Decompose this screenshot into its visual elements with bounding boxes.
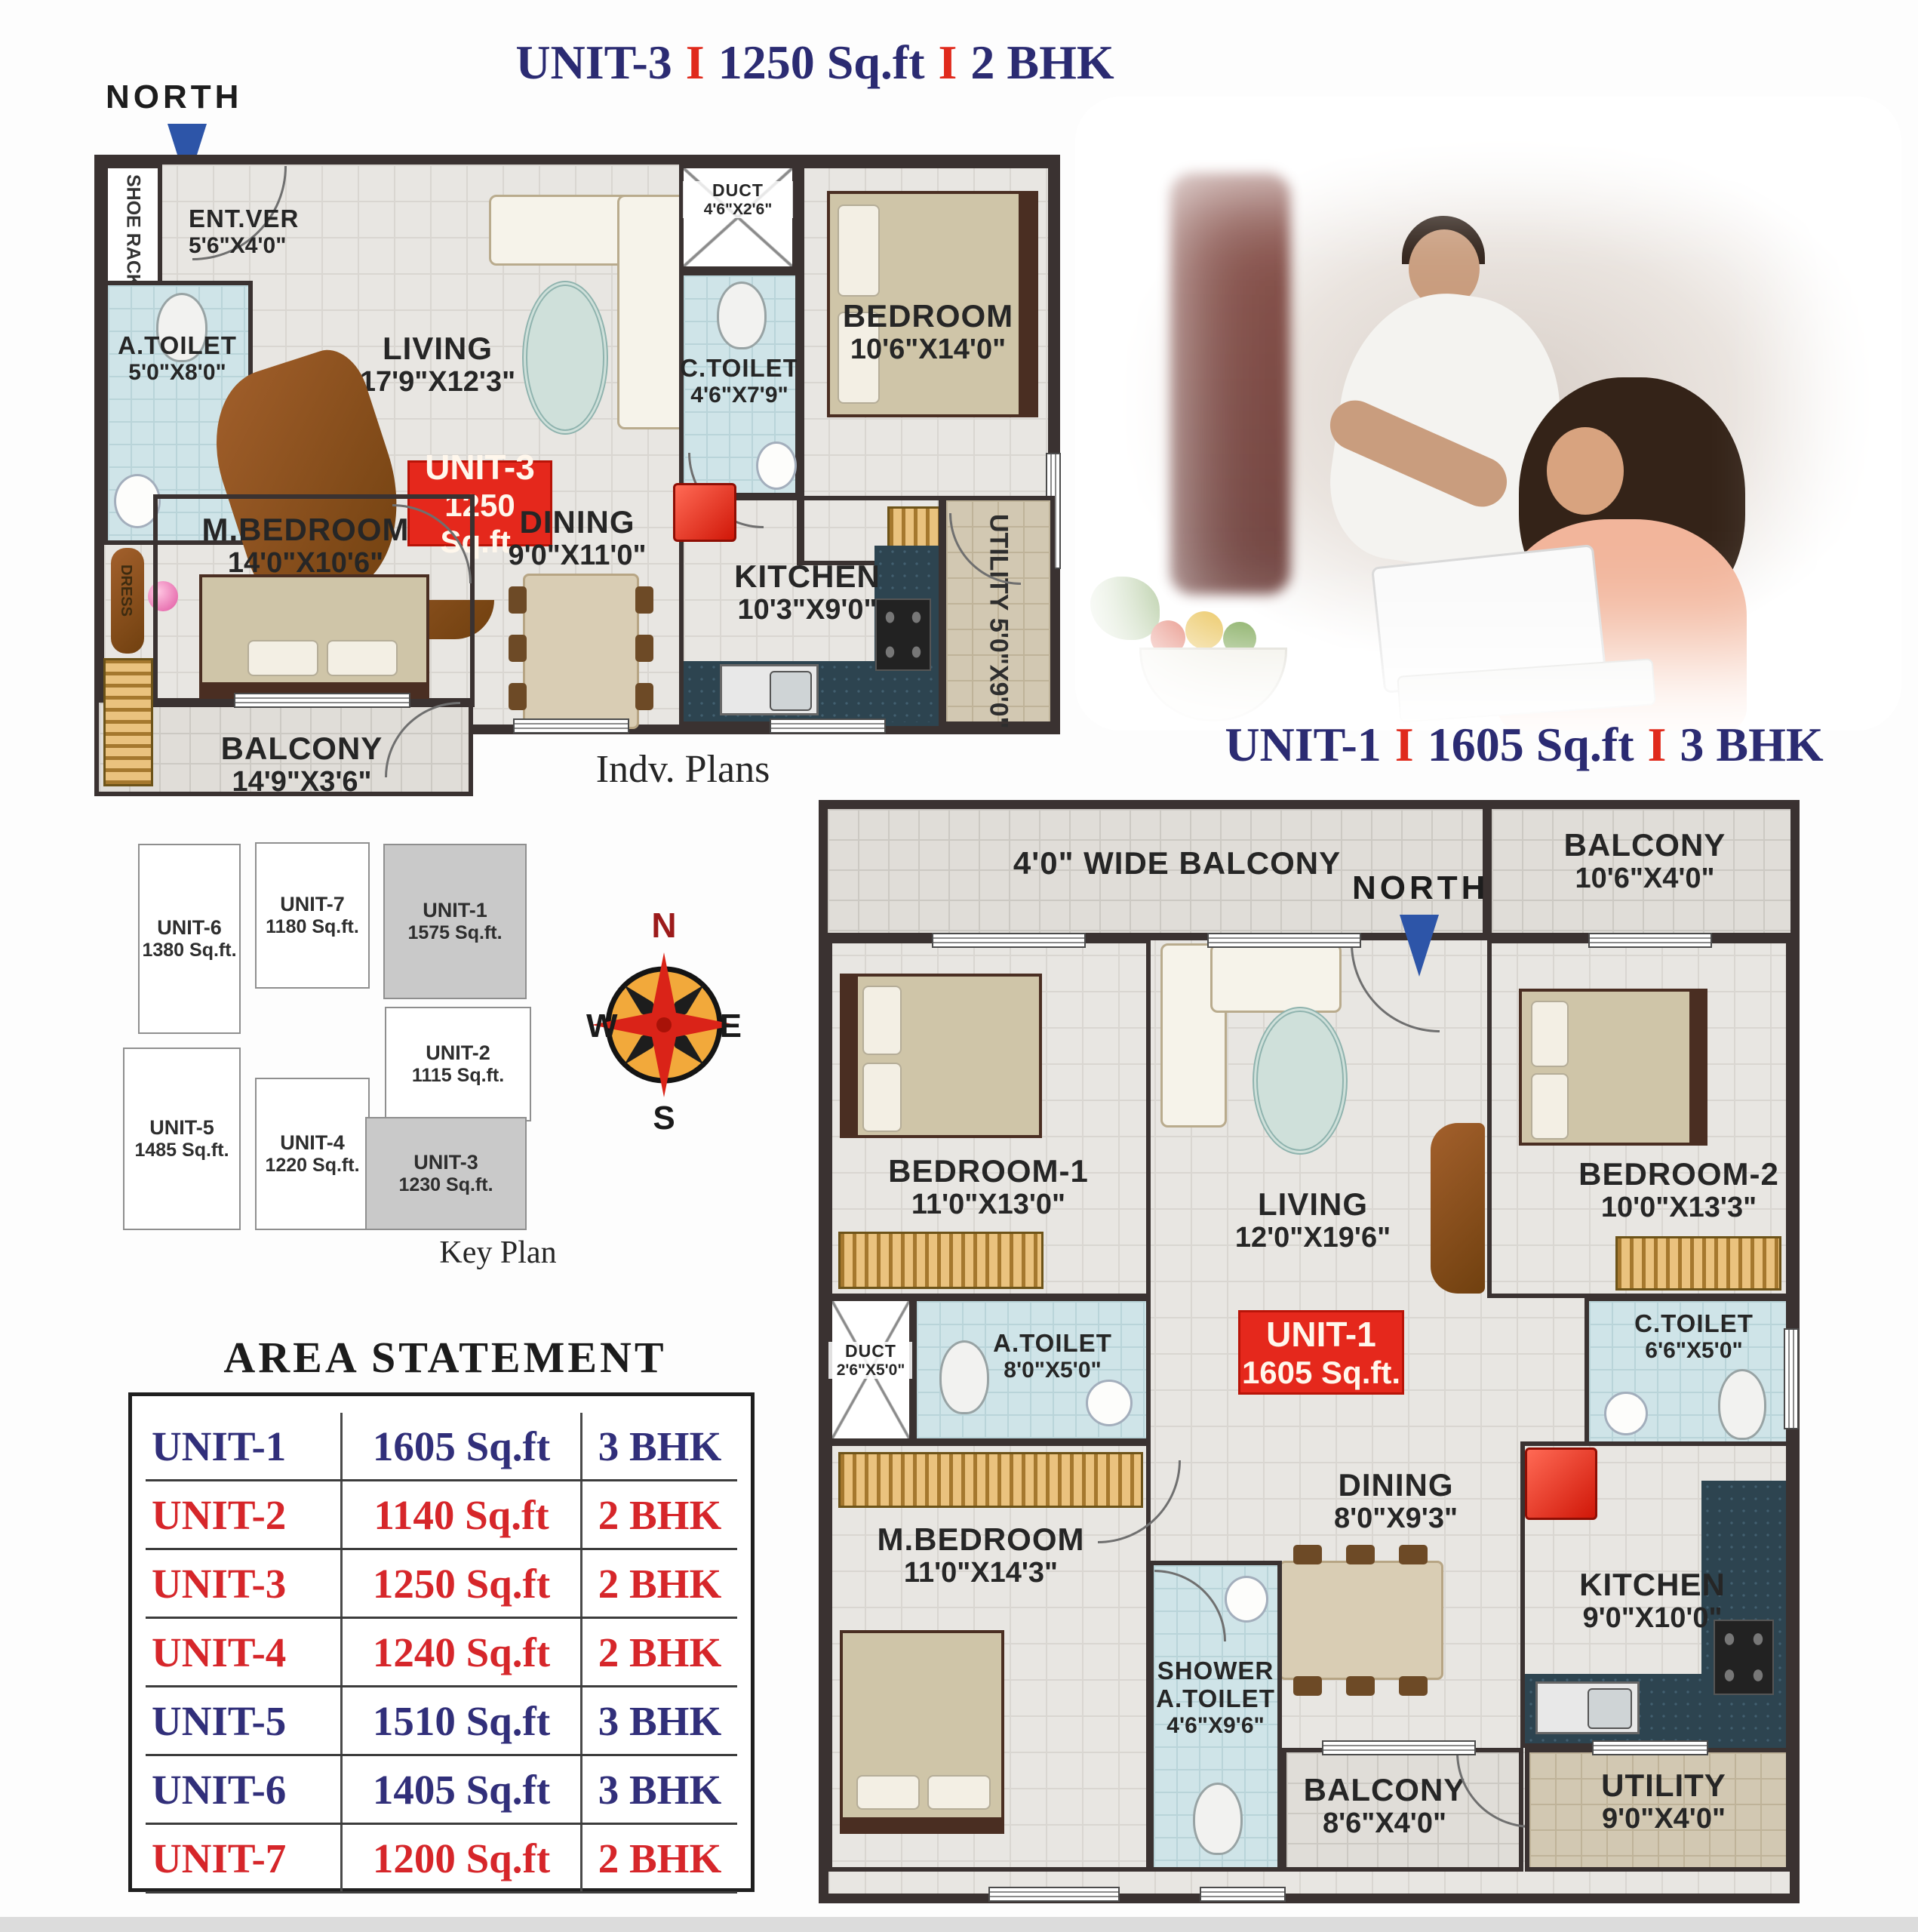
unit1-bedroom2-wardrobe-icon [1615,1236,1781,1291]
cell-bhk: 2 BHK [582,1560,737,1607]
room-dims: 10'6"X4'0" [1532,863,1758,895]
unit3-title-bhk: 2 BHK [970,35,1114,89]
unit1-title: UNIT-1I1605 Sq.ftI3 BHK [1222,717,1826,773]
keyplan-unit-area: 1485 Sq.ft. [134,1140,229,1161]
keyplan-unit6: UNIT-6 1380 Sq.ft. [138,844,241,1034]
bed-icon [1519,989,1707,1146]
rug-icon [1253,1007,1348,1155]
room-dims: 9'0"X11'0" [475,540,679,572]
pillow-icon [327,640,398,676]
keyplan-unit-name: UNIT-4 [280,1131,345,1155]
dining-table-icon [1279,1561,1443,1680]
unit1-bedroom1-label: BEDROOM-1 11'0"X13'0" [860,1153,1117,1221]
unit1-living-label: LIVING 12'0"X19'6" [1200,1186,1426,1254]
table-row: UNIT-2 1140 Sq.ft 2 BHK [146,1481,737,1550]
keyplan-unit-area: 1380 Sq.ft. [142,940,236,961]
cell-area: 1510 Sq.ft [340,1687,582,1754]
room-name: KITCHEN [702,558,913,594]
area-statement-title: AREA STATEMENT [181,1332,709,1383]
unit3-duct-label: DUCT 4'6"X2'6" [683,181,793,218]
room-dims: 14'9"X3'6" [189,766,415,798]
unit3-title-name: UNIT-3 [515,35,672,89]
unit1-wide-balcony-label: 4'0" WIDE BALCONY [966,845,1388,881]
unit1-dining-label: DINING 8'0"X9'3" [1283,1467,1509,1535]
bed-icon [840,974,1042,1138]
room-name: BEDROOM-2 [1554,1156,1803,1192]
room-dims: 10'3"X9'0" [702,594,913,626]
keyplan-unit-name: UNIT-2 [426,1041,490,1065]
chair-icon [1399,1676,1428,1696]
unit1-a-toilet-label: A.TOILET 8'0"X5'0" [966,1330,1139,1383]
sink-icon [720,664,819,715]
room-name: A.TOILET [1151,1685,1280,1713]
chair-icon [635,635,653,662]
room-name: A.TOILET [966,1330,1139,1358]
cell-bhk: 2 BHK [582,1629,737,1676]
cell-bhk: 2 BHK [582,1491,737,1539]
cell-bhk: 3 BHK [582,1423,737,1470]
cell-bhk: 2 BHK [582,1835,737,1882]
window-icon [234,693,410,708]
window-icon [988,1887,1120,1902]
compass-s: S [653,1100,675,1132]
pillow-icon [862,986,902,1055]
pillow-icon [856,1775,920,1810]
room-name: DINING [475,504,679,540]
room-dims: 9'0"X10'0" [1539,1602,1766,1635]
room-dims: 2'6"X5'0" [828,1361,913,1380]
compass-w: W [586,1008,618,1044]
unit3-title-area: 1250 Sq.ft [718,35,925,89]
room-dims: 5'0"X8'0" [106,360,249,386]
unit1-bedroom1-wardrobe-icon [838,1232,1044,1289]
bed-headboard [840,974,858,1138]
unit1-kitchen-label: KITCHEN 9'0"X10'0" [1539,1567,1766,1635]
cell-unit: UNIT-5 [146,1697,340,1745]
photo-soft-edge [1075,97,1901,731]
room-dims: 8'0"X5'0" [966,1358,1139,1383]
unit1-north-label: NORTH [1352,869,1489,907]
chair-icon [635,586,653,614]
keyplan-caption: Key Plan [423,1235,573,1271]
separator-bar-icon: I [925,35,971,89]
keyplan-unit-name: UNIT-3 [413,1151,478,1174]
unit3-shoe-rack-label: SHOE RACK [122,174,144,288]
table-row: UNIT-6 1405 Sq.ft 3 BHK [146,1756,737,1825]
unit1-title-area: 1605 Sq.ft [1428,718,1634,771]
cell-area: 1140 Sq.ft [340,1481,582,1548]
room-name: KITCHEN [1539,1567,1766,1602]
table-row: UNIT-5 1510 Sq.ft 3 BHK [146,1687,737,1756]
cell-unit: UNIT-2 [146,1491,340,1539]
unit1-balcony-top-label: BALCONY 10'6"X4'0" [1532,827,1758,895]
cell-area: 1200 Sq.ft [340,1825,582,1891]
room-name: DUCT [828,1342,913,1361]
chair-icon [1293,1545,1322,1564]
cell-area: 1605 Sq.ft [340,1413,582,1479]
unit1-title-bhk: 3 BHK [1680,718,1823,771]
unit1-utility-label: UTILITY 9'0"X4'0" [1577,1767,1750,1835]
room-dims: 10'0"X13'3" [1554,1192,1803,1224]
compass-e: E [720,1008,742,1044]
sofa-icon [1210,943,1342,1013]
room-name: UTILITY [1577,1767,1750,1803]
room-dims: 12'0"X19'6" [1200,1222,1426,1254]
room-name: LIVING [1200,1186,1426,1222]
rug-icon [522,281,608,435]
room-dims: 6'6"X5'0" [1607,1338,1781,1364]
table-row: UNIT-3 1250 Sq.ft 2 BHK [146,1550,737,1619]
keyplan-unit-name: UNIT-1 [423,899,487,922]
indv-plans-caption: Indv. Plans [555,747,811,792]
refrigerator-icon [1525,1447,1597,1520]
chair-icon [1399,1545,1428,1564]
chair-icon [509,683,527,710]
unit3-dress-area: DRESS [103,545,153,658]
keyplan-unit2: UNIT-2 1115 Sq.ft. [385,1007,531,1121]
keyplan-unit-name: UNIT-6 [157,916,222,940]
cell-unit: UNIT-4 [146,1629,340,1676]
room-dims: 11'0"X14'3" [853,1557,1109,1589]
room-name: C.TOILET [1607,1310,1781,1338]
room-name: ENT.VER [189,205,377,233]
keyplan-unit4: UNIT-4 1220 Sq.ft. [255,1078,370,1230]
window-icon [1207,933,1361,948]
window-icon [1784,1328,1799,1429]
toilet-basin-icon [1225,1576,1268,1623]
bed-headboard [1689,989,1707,1146]
room-dims: 4'6"X9'6" [1151,1713,1280,1739]
unit3-title: UNIT-3I1250 Sq.ftI2 BHK [498,35,1132,91]
window-icon [513,718,629,734]
chair-icon [509,635,527,662]
cell-unit: UNIT-1 [146,1423,340,1470]
unit1-bedroom1 [828,939,1151,1298]
toilet-wc-icon [717,281,767,349]
room-name: A.TOILET [106,332,249,360]
room-name: 4'0" WIDE BALCONY [966,845,1388,881]
chair-icon [1346,1545,1375,1564]
room-dims: 5'6"X4'0" [189,233,377,259]
sink-tub [770,671,813,710]
room-dims: 10'6"X14'0" [830,334,1026,366]
chair-icon [635,683,653,710]
bed-icon [840,1630,1004,1834]
room-name: BEDROOM-1 [860,1153,1117,1189]
unit1-bedroom2-label: BEDROOM-2 10'0"X13'3" [1554,1156,1803,1224]
room-dims: 11'0"X13'0" [860,1189,1117,1221]
tv-unit-icon [1431,1123,1485,1294]
pillow-icon [1531,1001,1569,1067]
room-dims: 8'0"X9'3" [1283,1503,1509,1535]
unit1-title-name: UNIT-1 [1225,718,1381,771]
keyplan-unit-area: 1230 Sq.ft. [398,1174,493,1196]
unit3-dining-label: DINING 9'0"X11'0" [475,504,679,572]
unit3-dress-label: DRESS [117,565,134,617]
unit1-c-toilet-label: C.TOILET 6'6"X5'0" [1607,1310,1781,1364]
cell-unit: UNIT-3 [146,1560,340,1607]
pillow-icon [838,205,880,297]
pillow-icon [247,640,318,676]
dining-table-icon [523,574,639,729]
separator-bar-icon: I [1382,718,1428,771]
room-name: LIVING [324,331,551,366]
keyplan-unit-name: UNIT-5 [149,1116,214,1140]
room-name: DINING [1283,1467,1509,1503]
toilet-wc-icon [1718,1369,1766,1440]
unit3-balcony-label: BALCONY 14'9"X3'6" [189,731,415,798]
compass-n: N [651,906,676,945]
table-row: UNIT-1 1605 Sq.ft 3 BHK [146,1413,737,1481]
keyplan-unit-area: 1115 Sq.ft. [412,1065,504,1087]
chair-icon [1293,1676,1322,1696]
cell-area: 1240 Sq.ft [340,1619,582,1685]
bed-headboard [840,1817,1004,1834]
chair-icon [509,586,527,614]
unit3-c-toilet-label: C.TOILET 4'6"X7'9" [678,355,801,408]
badge-line1: UNIT-3 [410,447,550,488]
badge-line2: 1605 Sq.ft. [1240,1355,1402,1391]
couple-photo [1075,97,1901,731]
toilet-basin-icon [1086,1380,1133,1426]
room-dims: 4'6"X2'6" [683,201,793,219]
keyplan-unit7: UNIT-7 1180 Sq.ft. [255,842,370,989]
window-icon [1588,933,1712,948]
unit1-shower-toilet-label: SHOWER A.TOILET 4'6"X9'6" [1151,1657,1280,1739]
window-icon [770,718,886,734]
separator-bar-icon: I [1634,718,1680,771]
room-name: M.BEDROOM [853,1521,1109,1557]
room-name: BALCONY [1532,827,1758,863]
toilet-wc-icon [1193,1783,1243,1855]
cell-bhk: 3 BHK [582,1766,737,1814]
keyplan-unit-area: 1220 Sq.ft. [265,1155,359,1177]
table-row: UNIT-7 1200 Sq.ft 2 BHK [146,1825,737,1894]
window-icon [932,933,1086,948]
chair-icon [1346,1676,1375,1696]
room-dims: 9'0"X4'0" [1577,1803,1750,1835]
unit3-north-label: NORTH [106,78,242,116]
cell-area: 1405 Sq.ft [340,1756,582,1823]
unit3-bedroom-label: BEDROOM 10'6"X14'0" [830,298,1026,366]
keyplan-unit3: UNIT-3 1230 Sq.ft. [365,1117,527,1230]
unit1-balcony-bottom-label: BALCONY 8'6"X4'0" [1294,1772,1475,1840]
room-dims: 5'0"X9'0" [985,618,1013,729]
unit3-wardrobe-icon [103,658,153,786]
window-icon [1200,1887,1286,1902]
room-dims: 8'6"X4'0" [1294,1807,1475,1840]
room-name: BALCONY [1294,1772,1475,1807]
keyplan-unit-area: 1575 Sq.ft. [407,922,502,944]
cell-unit: UNIT-6 [146,1766,340,1814]
room-dims: 4'6"X7'9" [678,383,801,408]
refrigerator-icon [673,483,736,542]
page-bottom-strip [0,1917,1918,1932]
room-name: BALCONY [189,731,415,766]
room-name: C.TOILET [678,355,801,383]
sink-tub [1588,1688,1632,1729]
table-row: UNIT-4 1240 Sq.ft 2 BHK [146,1619,737,1687]
window-icon [1592,1740,1708,1755]
window-icon [1322,1740,1476,1755]
cell-bhk: 3 BHK [582,1697,737,1745]
unit1-duct-label: DUCT 2'6"X5'0" [828,1342,913,1379]
compass-rose-icon: N S W E [577,906,751,1132]
pillow-icon [927,1775,991,1810]
sink-icon [1535,1681,1640,1734]
cell-unit: UNIT-7 [146,1835,340,1882]
keyplan-unit-area: 1180 Sq.ft. [266,916,359,938]
bed-icon [199,574,429,699]
unit1-area-badge: UNIT-1 1605 Sq.ft. [1238,1310,1404,1395]
room-name: BEDROOM [830,298,1026,334]
pillow-icon [1531,1073,1569,1140]
room-name: DUCT [683,181,793,201]
keyplan-unit1: UNIT-1 1575 Sq.ft. [383,844,527,999]
badge-line1: UNIT-1 [1240,1314,1402,1355]
brochure-page: UNIT-3I1250 Sq.ftI2 BHK NORTH SHOE RACK … [0,0,1918,1932]
separator-bar-icon: I [672,35,718,89]
unit3-entver-label: ENT.VER 5'6"X4'0" [189,205,377,259]
unit1-bedroom2 [1487,939,1790,1298]
keyplan-unit-name: UNIT-7 [280,893,345,916]
cell-area: 1250 Sq.ft [340,1550,582,1617]
pillow-icon [862,1063,902,1132]
unit1-m-bedroom-label: M.BEDROOM 11'0"X14'3" [853,1521,1109,1589]
room-name: SHOWER [1151,1657,1280,1685]
keyplan-unit5: UNIT-5 1485 Sq.ft. [123,1048,241,1230]
unit3-a-toilet-label: A.TOILET 5'0"X8'0" [106,332,249,386]
toilet-basin-icon [1604,1392,1648,1435]
unit3-kitchen-label: KITCHEN 10'3"X9'0" [702,558,913,626]
area-statement-table: UNIT-1 1605 Sq.ft 3 BHK UNIT-2 1140 Sq.f… [128,1392,755,1892]
